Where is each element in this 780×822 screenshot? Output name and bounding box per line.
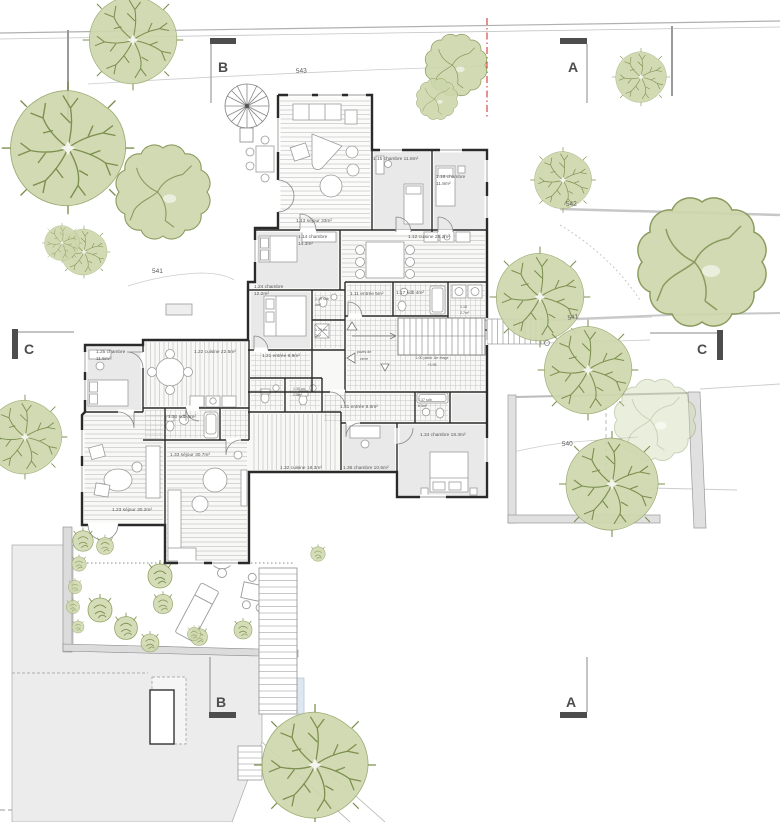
room-label-125-area: 11.5m² <box>96 356 111 362</box>
room-label-131: 1.31 entrée 8.8m² <box>340 404 378 410</box>
contour-label-543: 543 <box>296 67 308 75</box>
section-letter-a-bottom: A <box>566 694 576 710</box>
tree <box>254 704 376 822</box>
room-label-137: 1.37 sdb <box>418 398 432 402</box>
room-label-136: 1.36 chambre 10.5m² <box>343 465 389 471</box>
room-label-120: 1.20 wc <box>315 328 328 332</box>
section-marker-a-top: A <box>560 38 587 103</box>
contour-label-541-left: 541 <box>152 268 163 275</box>
tree <box>530 147 596 213</box>
room-label-137-area: 6.5m² <box>418 404 428 408</box>
room-label-115: 1.15 chambre 11.8m² <box>373 156 419 162</box>
floor-plan-canvas: 1.13 séjour 33m² 1.14 chambre 14.3m² 1.1… <box>0 0 780 822</box>
tree <box>0 395 67 480</box>
room-label-116: 1.16 chambre <box>436 174 466 180</box>
room-label-111: 1.11 entrée 5m² <box>350 291 384 297</box>
room-label-120-area: 2m² <box>315 334 322 338</box>
room-label-130: 1.30 sdb 5m² <box>168 414 196 420</box>
room-label-122: 1.22 cuisine 22.5m² <box>194 349 236 355</box>
tree <box>116 145 210 239</box>
tree <box>2 82 135 215</box>
room-label-118-area: 2.7m² <box>460 311 470 315</box>
room-label-134: 1.34 chambre 18.3m² <box>420 432 466 438</box>
site-plan-page: 1.13 séjour 33m² 1.14 chambre 14.3m² 1.1… <box>0 0 780 822</box>
section-letter-b-bottom: B <box>216 694 226 710</box>
room-label-114-area: 14.3m² <box>298 241 313 247</box>
section-marker-c-left: C <box>12 329 74 359</box>
section-marker-b-top: B <box>210 38 236 103</box>
section-letter-a-top: A <box>568 59 578 75</box>
tree <box>42 223 82 263</box>
room-label-119: 1.19 sdb <box>315 297 329 301</box>
room-label-135-area: 2.5m² <box>293 393 303 397</box>
room-label-112: 1.12 cuisine 28.2m² <box>408 234 450 240</box>
room-label-119-area: 4m² <box>315 303 322 307</box>
tree <box>638 198 766 326</box>
room-label-118: 1.18 <box>460 305 467 309</box>
site-bench <box>166 304 192 315</box>
room-label-124: 1.24 chambre <box>254 284 284 290</box>
palier-label: 1.00 palier 1er étage <box>416 356 449 360</box>
room-label-116-area: 11.8m² <box>436 181 451 187</box>
room-label-135: 1.35 wc <box>293 387 306 391</box>
tree <box>416 78 457 119</box>
room-label-133: 1.33 séjour 30.7m² <box>170 452 210 458</box>
room-label-117: 1.17 sdb 4m² <box>396 290 424 296</box>
room-label-114: 1.14 chambre <box>298 234 328 240</box>
glass-block-note: pavés de <box>357 350 372 354</box>
spiral-staircase <box>225 84 269 142</box>
contour-label-542: 542 <box>566 201 577 208</box>
section-letter-b-top: B <box>218 59 228 75</box>
contour-label-540: 540 <box>562 440 574 448</box>
room-label-113: 1.13 séjour 33m² <box>296 218 332 224</box>
section-marker-a-bottom: A <box>560 657 587 718</box>
palier-level: +3.95 <box>427 363 436 367</box>
neighbor-building <box>12 545 262 822</box>
room-label-125: 1.25 chambre <box>96 349 126 355</box>
room-label-124-area: 12.2m² <box>254 291 269 297</box>
contour-label-541-right: 541 <box>567 313 579 322</box>
section-letter-c-left: C <box>24 341 34 357</box>
glass-block-note-2: verre <box>360 357 368 361</box>
section-marker-c-right: C <box>650 330 723 360</box>
room-label-121: 1.21 entrée 8.9m² <box>262 353 300 359</box>
room-label-132: 1.32 cuisine 18.3m² <box>280 465 322 471</box>
tree <box>83 0 184 90</box>
tree <box>612 48 670 106</box>
tree <box>559 431 665 537</box>
section-letter-c-right: C <box>697 341 707 357</box>
contour-line-541-left <box>128 273 234 286</box>
room-label-123: 1.23 séjour 30.2m² <box>112 507 152 513</box>
